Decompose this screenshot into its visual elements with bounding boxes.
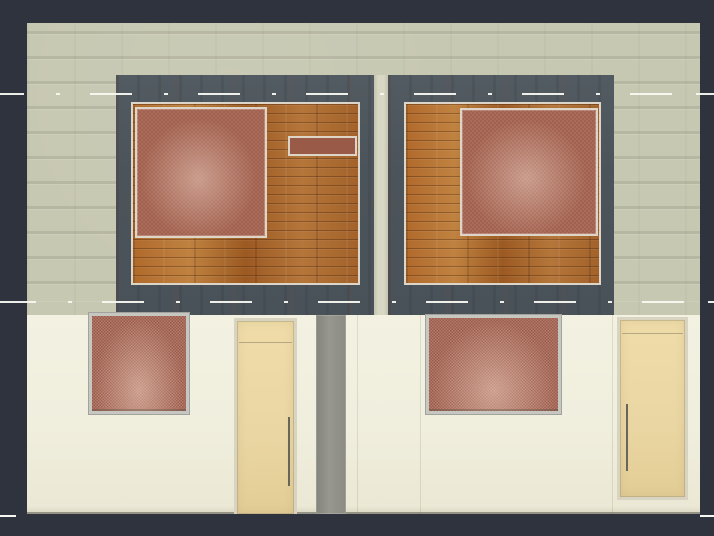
door-handle [288,417,290,486]
door-handle [626,404,628,471]
centerline-ground-right [700,515,714,517]
red-glass-panel [460,108,598,236]
entry-door-left[interactable] [234,318,297,514]
door-transom-line [239,342,292,343]
cad-viewport[interactable] [0,0,714,536]
lower-window-right[interactable] [426,315,561,414]
wall-panel-seam [357,315,358,514]
red-glass-panel [135,107,267,238]
centerline-middle[interactable] [0,301,714,303]
wall-panel-seam [612,315,613,514]
frame-gap-strip [374,75,388,315]
party-wall-divider[interactable] [316,315,346,514]
centerline-upper[interactable] [0,93,714,95]
wall-panel-seam [420,315,421,514]
door-transom-line [622,333,683,334]
upper-window-opening-right[interactable] [404,102,601,285]
lower-window-left[interactable] [89,313,189,414]
upper-window-opening-left[interactable] [131,102,360,285]
red-glass-slot [288,136,357,156]
centerline-ground-left [0,515,16,517]
entry-door-right[interactable] [617,317,688,500]
